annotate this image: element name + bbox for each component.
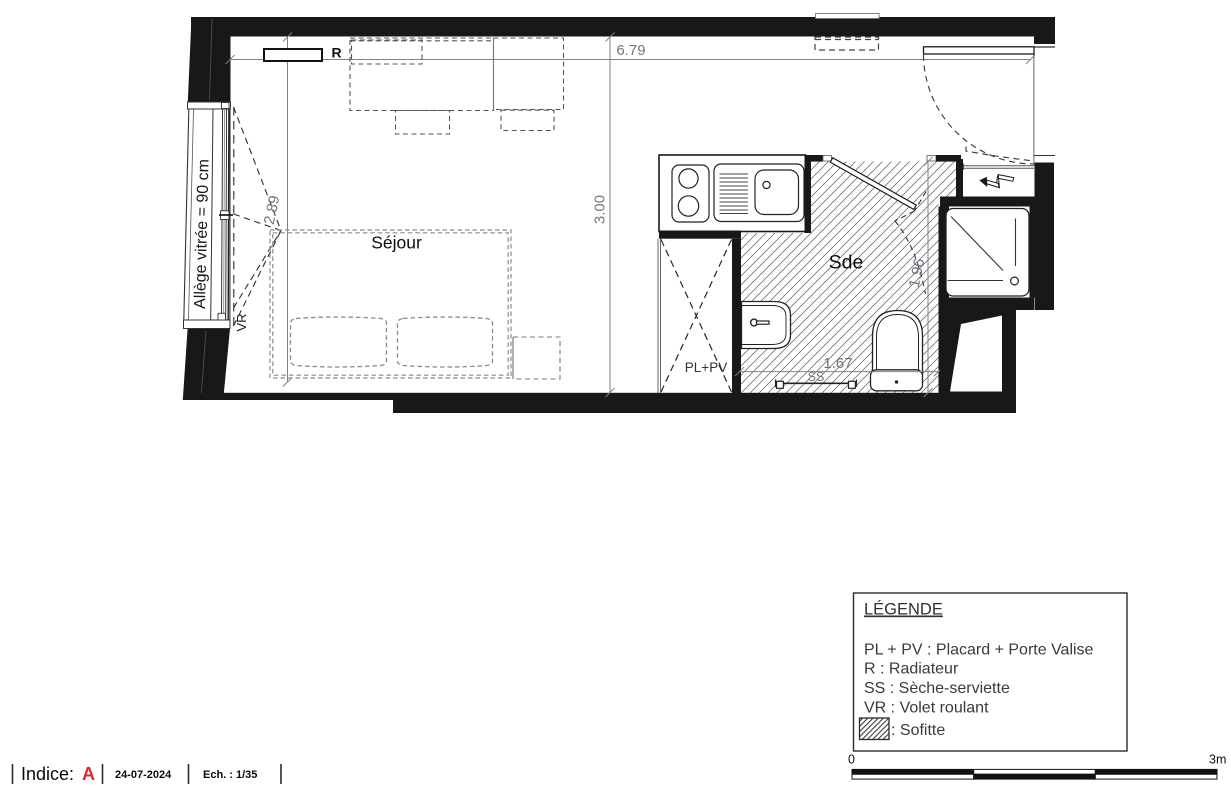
svg-text:Séjour: Séjour <box>371 233 422 253</box>
svg-text:3.00: 3.00 <box>592 195 609 224</box>
svg-text:Sde: Sde <box>829 252 864 274</box>
svg-text:24-07-2024: 24-07-2024 <box>115 769 172 781</box>
svg-text:VR: VR <box>234 313 249 331</box>
svg-text:3m: 3m <box>1209 753 1226 767</box>
svg-text:: Sofitte: : Sofitte <box>891 722 945 739</box>
svg-text:6.79: 6.79 <box>616 42 645 59</box>
svg-text:PL + PV : Placard + Porte Vali: PL + PV : Placard + Porte Valise <box>864 642 1094 659</box>
svg-text:Indice:: Indice: <box>21 764 74 784</box>
svg-text:A: A <box>82 764 95 784</box>
svg-text:LÉGENDE: LÉGENDE <box>864 600 943 619</box>
svg-text:1.67: 1.67 <box>823 355 852 372</box>
svg-text:0: 0 <box>848 753 855 767</box>
svg-text:R: R <box>332 45 342 61</box>
svg-text:SS : Sèche-serviette: SS : Sèche-serviette <box>864 680 1010 697</box>
svg-text:PL+PV: PL+PV <box>685 360 727 375</box>
svg-text:VR : Volet roulant: VR : Volet roulant <box>864 700 989 717</box>
svg-text:Ech. : 1/35: Ech. : 1/35 <box>203 769 257 781</box>
svg-text:R : Radiateur: R : Radiateur <box>864 661 959 678</box>
svg-text:2.89: 2.89 <box>261 194 284 226</box>
